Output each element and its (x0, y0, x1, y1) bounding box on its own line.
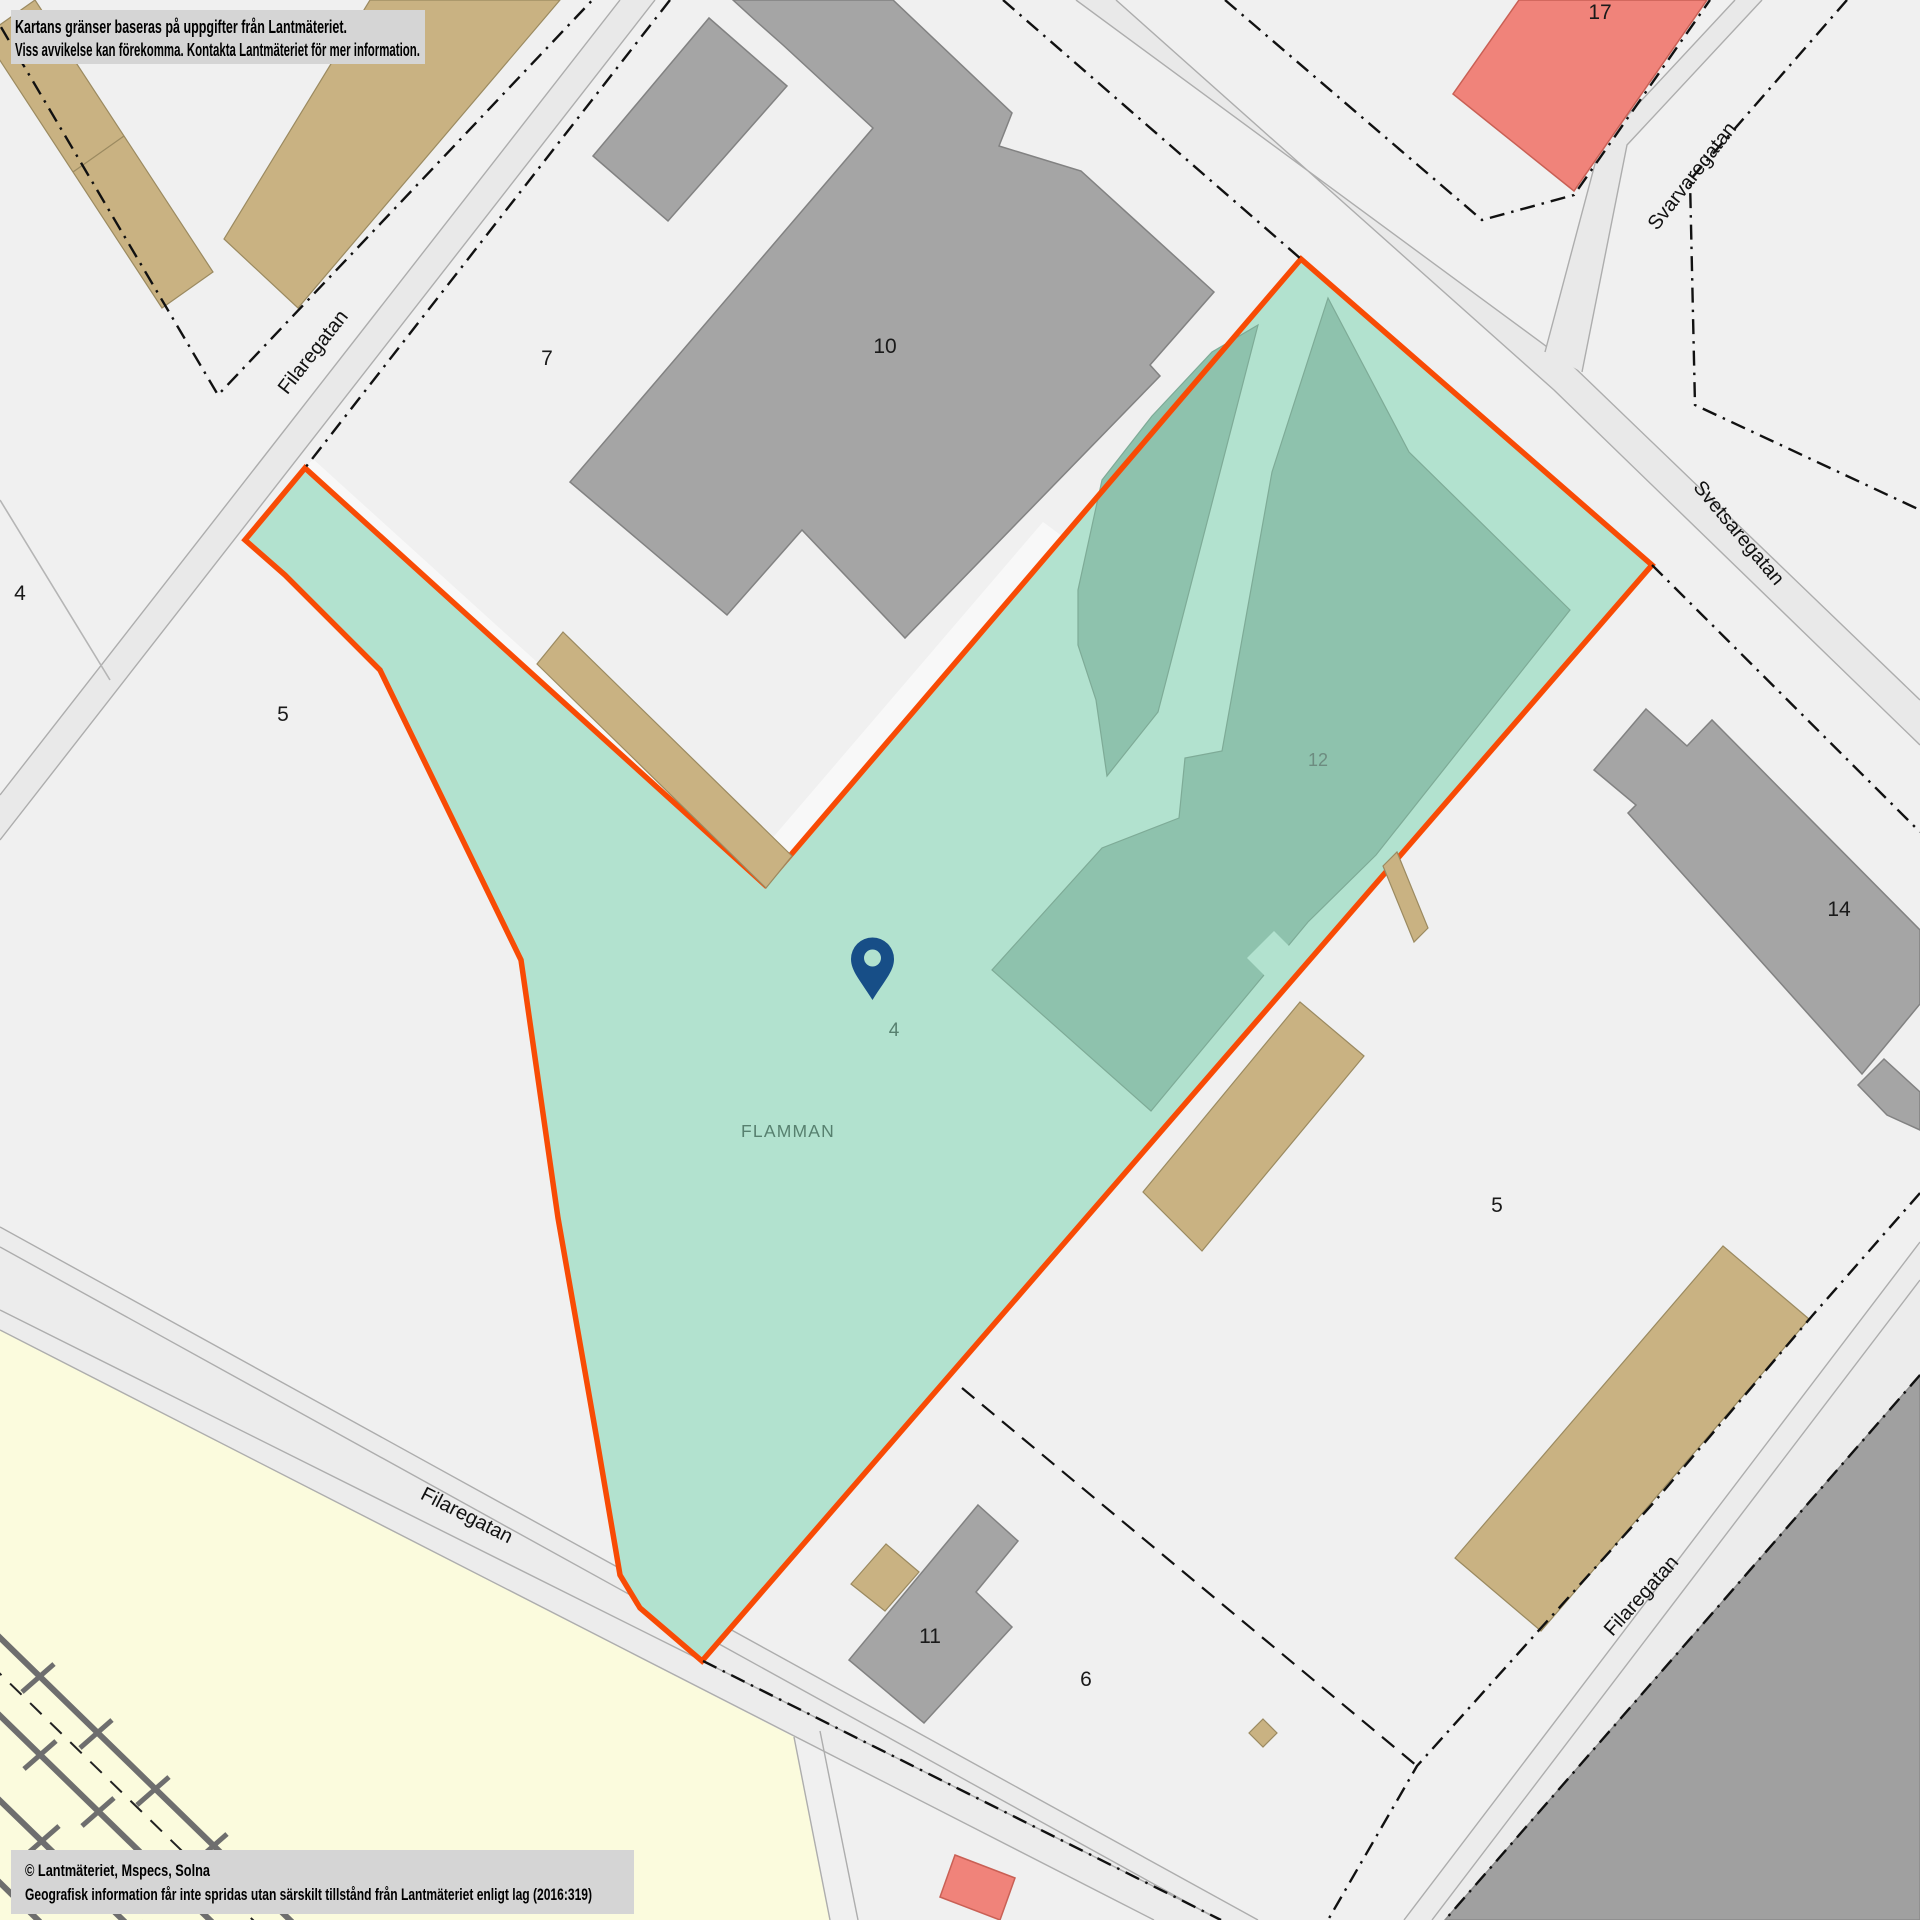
svg-text:© Lantmäteriet, Mspecs, Solna: © Lantmäteriet, Mspecs, Solna (25, 1861, 210, 1880)
svg-text:5: 5 (1491, 1194, 1503, 1217)
svg-text:6: 6 (1080, 1668, 1092, 1691)
svg-text:11: 11 (919, 1625, 941, 1648)
svg-text:Viss avvikelse kan förekomma.: Viss avvikelse kan förekomma. Kontakta L… (15, 40, 420, 60)
svg-text:Geografisk information får int: Geografisk information får inte spridas … (25, 1885, 592, 1904)
svg-text:4: 4 (14, 582, 26, 605)
svg-text:5: 5 (277, 703, 289, 726)
svg-text:14: 14 (1827, 898, 1851, 921)
svg-text:FLAMMAN: FLAMMAN (741, 1121, 835, 1141)
svg-text:12: 12 (1308, 750, 1328, 770)
svg-text:4: 4 (889, 1020, 900, 1041)
svg-text:10: 10 (873, 335, 896, 358)
svg-text:Kartans gränser baseras på upp: Kartans gränser baseras på uppgifter frå… (15, 17, 347, 37)
svg-text:7: 7 (541, 347, 553, 370)
svg-text:17: 17 (1588, 1, 1611, 24)
